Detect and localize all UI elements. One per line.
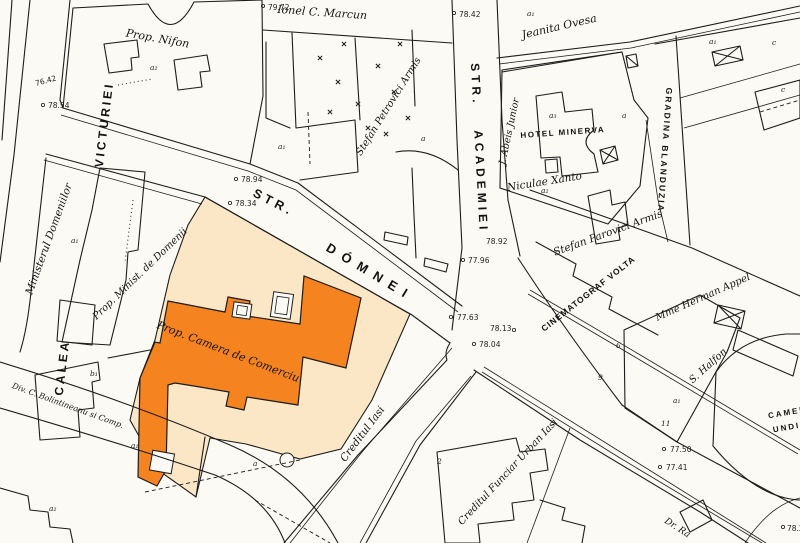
parcel-mark: 9: [598, 373, 603, 382]
cadastral-map: CALEA VICTURIEI STR. DÓMNEI STR. ACADEMI…: [0, 0, 800, 543]
parcel-mark: a: [622, 111, 626, 120]
street-academiei-prefix: STR.: [468, 63, 484, 107]
parcel-mark: 6: [616, 341, 621, 350]
parcel-mark: a₃: [549, 111, 556, 120]
elevation-value: 78.42: [459, 10, 481, 19]
elevation-value: 78.13: [490, 324, 512, 333]
parcel-mark: 11: [661, 419, 671, 428]
elevation-value: 78.94: [241, 175, 263, 184]
elevation-value: 77.96: [468, 256, 490, 265]
elevation-value: 77.41: [666, 463, 688, 472]
elevation-value: 78.34: [235, 199, 257, 208]
elevation-value: 78.92: [486, 237, 508, 246]
parcel-mark: a₂: [49, 504, 56, 513]
parcel-mark: a₂: [150, 63, 157, 72]
parcel-mark: a: [421, 134, 425, 143]
elevation-value: 78.04: [479, 340, 501, 349]
parcel-mark: 2: [436, 457, 442, 466]
elevation-value: 78.2: [787, 524, 800, 533]
parcel-mark: a₁: [527, 9, 534, 18]
elevation-value: 77.63: [457, 313, 479, 322]
elevation-value: 77.50: [670, 445, 692, 454]
parcel-mark: b₁: [90, 369, 98, 378]
parcel-mark: a₁: [278, 142, 285, 151]
parcel-mark: a₂: [541, 186, 548, 195]
parcel-mark: a: [253, 459, 257, 468]
parcel-mark: a₁: [673, 396, 680, 405]
parcel-mark: a₁: [131, 441, 138, 450]
elevation-value: 78.54: [48, 101, 70, 110]
elevation-value: 79.72: [268, 3, 290, 12]
parcel-mark: a₁: [709, 37, 716, 46]
parcel-mark: a₁: [71, 236, 78, 245]
